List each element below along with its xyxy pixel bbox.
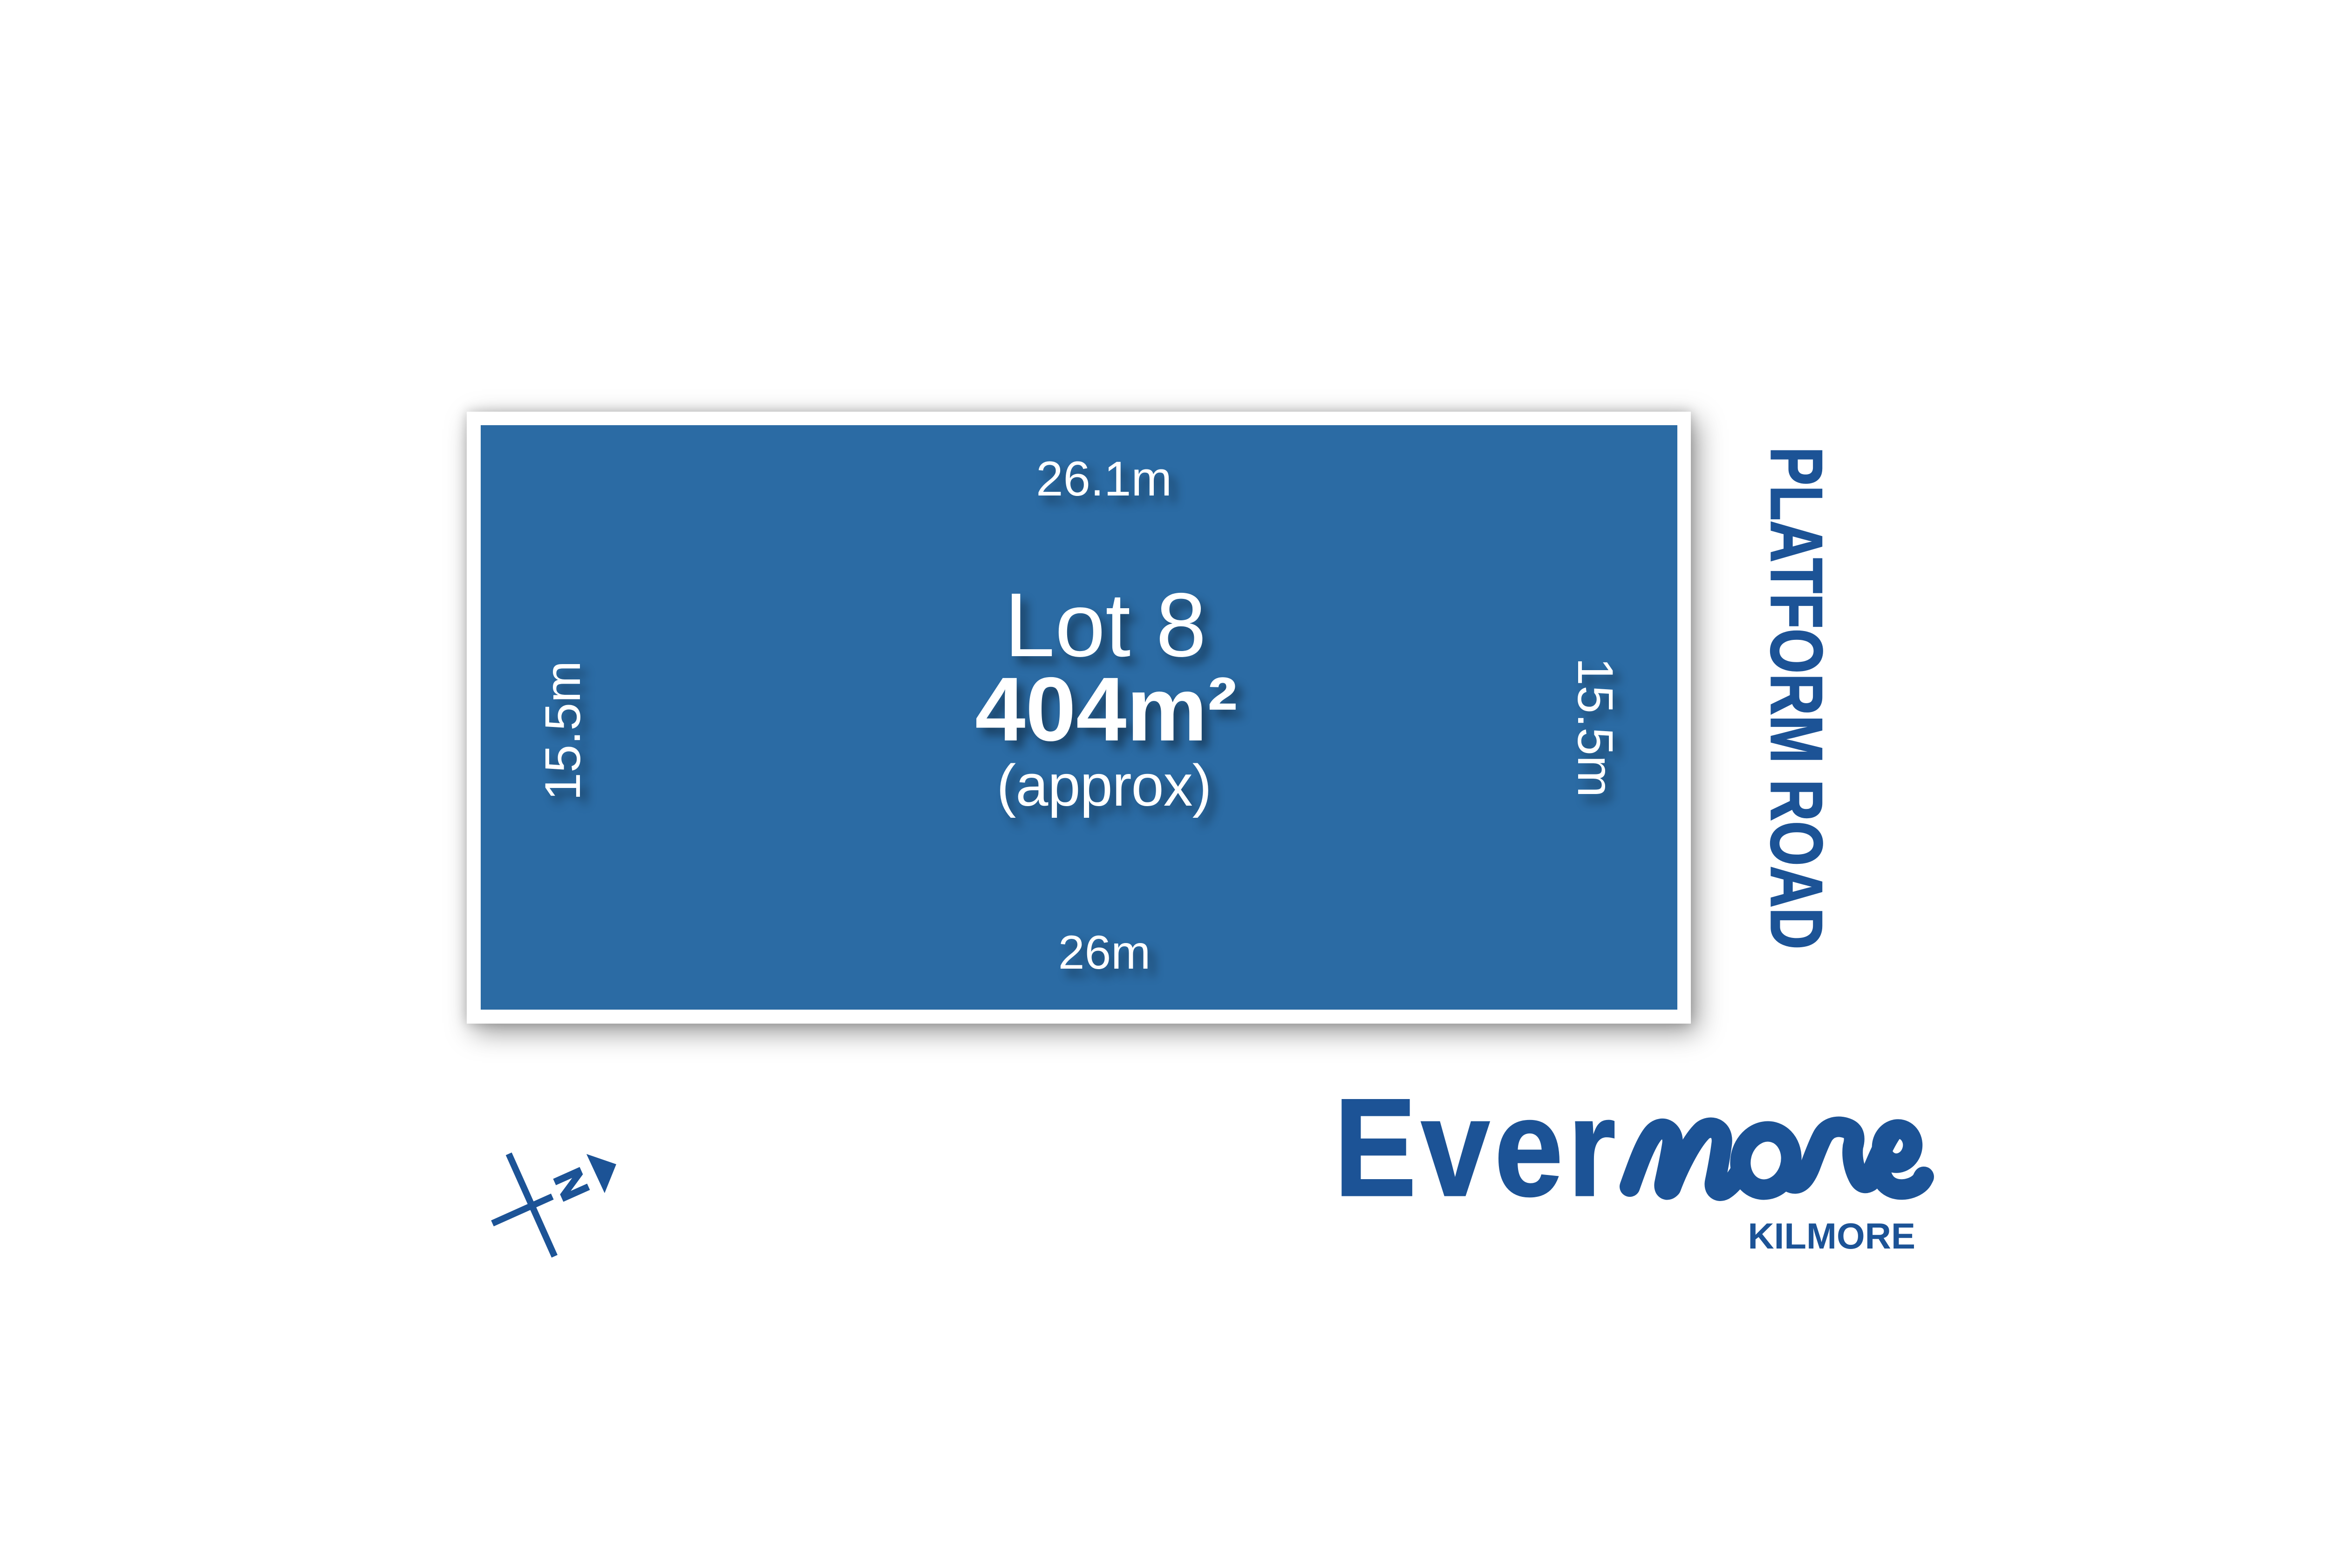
svg-text:N: N <box>545 1162 597 1207</box>
